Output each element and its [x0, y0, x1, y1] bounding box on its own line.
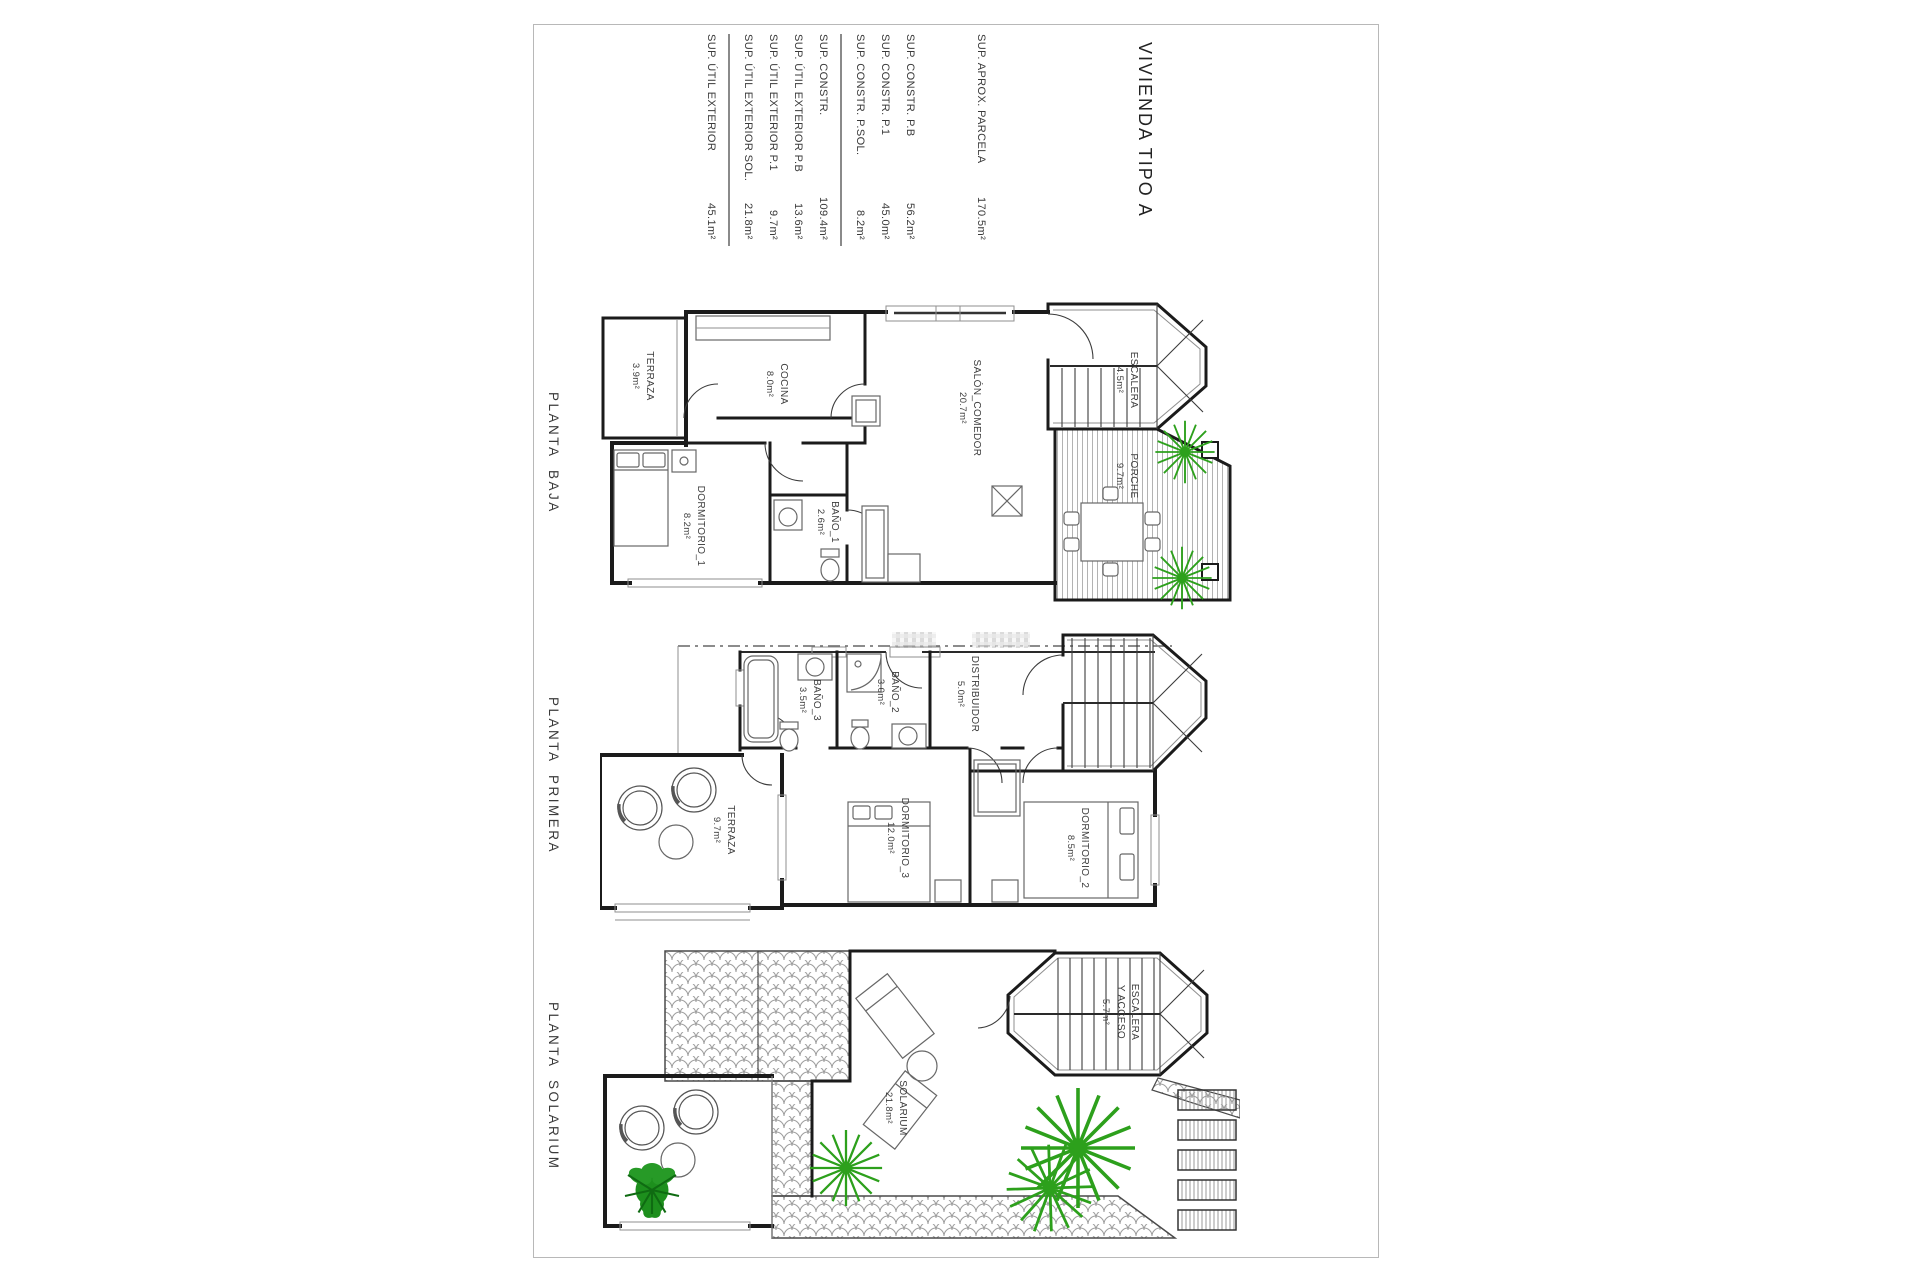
plan-name-planta-primera: PLANTA PRIMERA [546, 697, 561, 854]
toilet [821, 549, 839, 581]
table-row: SUP. CONSTR. P.1 45.0m² [877, 34, 892, 240]
bathroom-sink [892, 724, 926, 748]
nightstand [672, 450, 696, 472]
table-row: SUP. ÚTIL EXTERIOR P.B 13.6m² [790, 34, 805, 240]
window-bay [886, 306, 1014, 321]
room-label: BAÑO_2 [889, 671, 902, 713]
round-chair [620, 1106, 664, 1150]
armchair [852, 396, 880, 426]
room-label: DORMITORIO_2 [1079, 808, 1090, 889]
room-area: 8.0m² [764, 371, 775, 397]
room-area: 20.7m² [957, 392, 968, 424]
row-label: SUP. ÚTIL EXTERIOR SOL. [740, 34, 755, 181]
staircase [1050, 366, 1157, 427]
table-divider [840, 34, 842, 246]
row-label: SUP. APROX. PARCELA [973, 34, 988, 163]
kitchen-counter [696, 316, 830, 340]
row-value: 9.7m² [765, 210, 780, 240]
row-value: 56.2m² [902, 203, 917, 240]
watermark [892, 632, 936, 648]
bedside-table [935, 880, 961, 902]
room-area: 4.5m² [1114, 367, 1125, 393]
round-chair [674, 1090, 718, 1134]
toilet [851, 720, 869, 749]
room-label: BAÑO_1 [829, 501, 842, 543]
toilet [780, 722, 798, 751]
watermark [972, 632, 1030, 648]
table-row: SUP. ÚTIL EXTERIOR P.1 9.7m² [765, 34, 780, 240]
room-label: DORMITORIO_3 [899, 798, 910, 879]
sofa [862, 506, 920, 582]
table-row: SUP. CONSTR. P.B 56.2m² [902, 34, 917, 240]
table-row-total: SUP. CONSTR. 109.4m² [815, 34, 830, 240]
floor-plan-planta-primera: BAÑO_3 3.5m² BAÑO_2 3.0m² DISTRIBUIDOR 5… [600, 630, 1240, 940]
bathroom-sink [774, 500, 802, 530]
row-value: 21.8m² [740, 203, 755, 240]
room-area: 3.9m² [630, 363, 641, 389]
room-label: BAÑO_3 [811, 679, 824, 721]
table-row: SUP. APROX. PARCELA 170.5m² [973, 34, 988, 240]
room-label: DORMITORIO_1 [695, 486, 706, 567]
row-value: 170.5m² [973, 197, 988, 240]
room-area: 2.6m² [815, 509, 826, 535]
room-label: Y ACCESO [1115, 985, 1126, 1039]
door-arc [742, 652, 1063, 785]
palm-plant-icon [1021, 1088, 1135, 1208]
drawing-title: VIVIENDA TIPO A [1134, 42, 1155, 218]
drawing-canvas: VIVIENDA TIPO A SUP. APROX. PARCELA 170.… [0, 0, 1920, 1280]
room-area: 9.7m² [1114, 463, 1125, 489]
bathroom-sink [798, 654, 832, 680]
plan-name-planta-baja: PLANTA BAJA [546, 392, 561, 514]
room-area: 3.5m² [797, 687, 808, 713]
room-area: 8.5m² [1065, 835, 1076, 861]
row-value: 13.6m² [790, 203, 805, 240]
room-label: PORCHE [1128, 453, 1139, 498]
round-chair [672, 768, 716, 812]
sun-lounger [856, 974, 934, 1059]
room-label: DISTRIBUIDOR [969, 656, 980, 732]
round-table [907, 1051, 937, 1081]
table-divider [728, 34, 730, 246]
closet [974, 760, 1020, 816]
room-area: 5.0m² [955, 681, 966, 707]
room-area: 3.0m² [875, 679, 886, 705]
bed [614, 450, 668, 546]
row-label: SUP. CONSTR. P.1 [877, 34, 892, 135]
row-value: 109.4m² [815, 197, 830, 240]
room-area: 12.0m² [885, 822, 896, 854]
room-label: SOLARIUM [897, 1080, 908, 1135]
room-area: 9.7m² [711, 817, 722, 843]
round-table [659, 825, 693, 859]
staircase [1063, 638, 1153, 768]
room-label: COCINA [778, 363, 789, 404]
row-label: SUP. ÚTIL EXTERIOR [703, 34, 718, 151]
bedside-table [992, 880, 1018, 902]
row-label: SUP. ÚTIL EXTERIOR P.B [790, 34, 805, 172]
table-row: SUP. CONSTR. P.SOL. 8.2m² [852, 34, 867, 240]
table-row-total: SUP. ÚTIL EXTERIOR 45.1m² [703, 34, 718, 240]
room-label: ESCALERA [1128, 352, 1139, 409]
room-label: SALÓN_COMEDOR [971, 360, 984, 457]
room-label: TERRAZA [644, 351, 655, 400]
room-label: TERRAZA [725, 805, 736, 854]
room-label: ESCALERA [1129, 984, 1140, 1041]
table-row: SUP. ÚTIL EXTERIOR SOL. 21.8m² [740, 34, 755, 240]
floor-plan-planta-baja: TERRAZA 3.9m² COCINA 8.0m² SALÓN_COMEDOR… [600, 300, 1240, 625]
room-area: 5.7m² [1100, 999, 1111, 1025]
bathtub [744, 656, 778, 742]
row-label: SUP. CONSTR. [815, 34, 830, 116]
row-value: 45.1m² [703, 203, 718, 240]
row-label: SUP. ÚTIL EXTERIOR P.1 [765, 34, 780, 171]
bush-plant-icon [625, 1163, 679, 1222]
row-label: SUP. CONSTR. P.B [902, 34, 917, 137]
floor-plan-planta-solarium: ESCALERA Y ACCESO 5.7m² SOLARIUM 21.8m² [600, 948, 1240, 1256]
plan-name-planta-solarium: PLANTA SOLARIUM [546, 1002, 561, 1171]
room-area: 8.2m² [681, 513, 692, 539]
room-area: 21.8m² [883, 1092, 894, 1124]
areas-table: SUP. APROX. PARCELA 170.5m² SUP. CONSTR.… [703, 34, 988, 246]
row-value: 45.0m² [877, 203, 892, 240]
row-value: 8.2m² [852, 210, 867, 240]
row-label: SUP. CONSTR. P.SOL. [852, 34, 867, 156]
side-table [992, 486, 1022, 516]
round-chair [618, 786, 662, 830]
palm-plant-icon [810, 1130, 882, 1206]
